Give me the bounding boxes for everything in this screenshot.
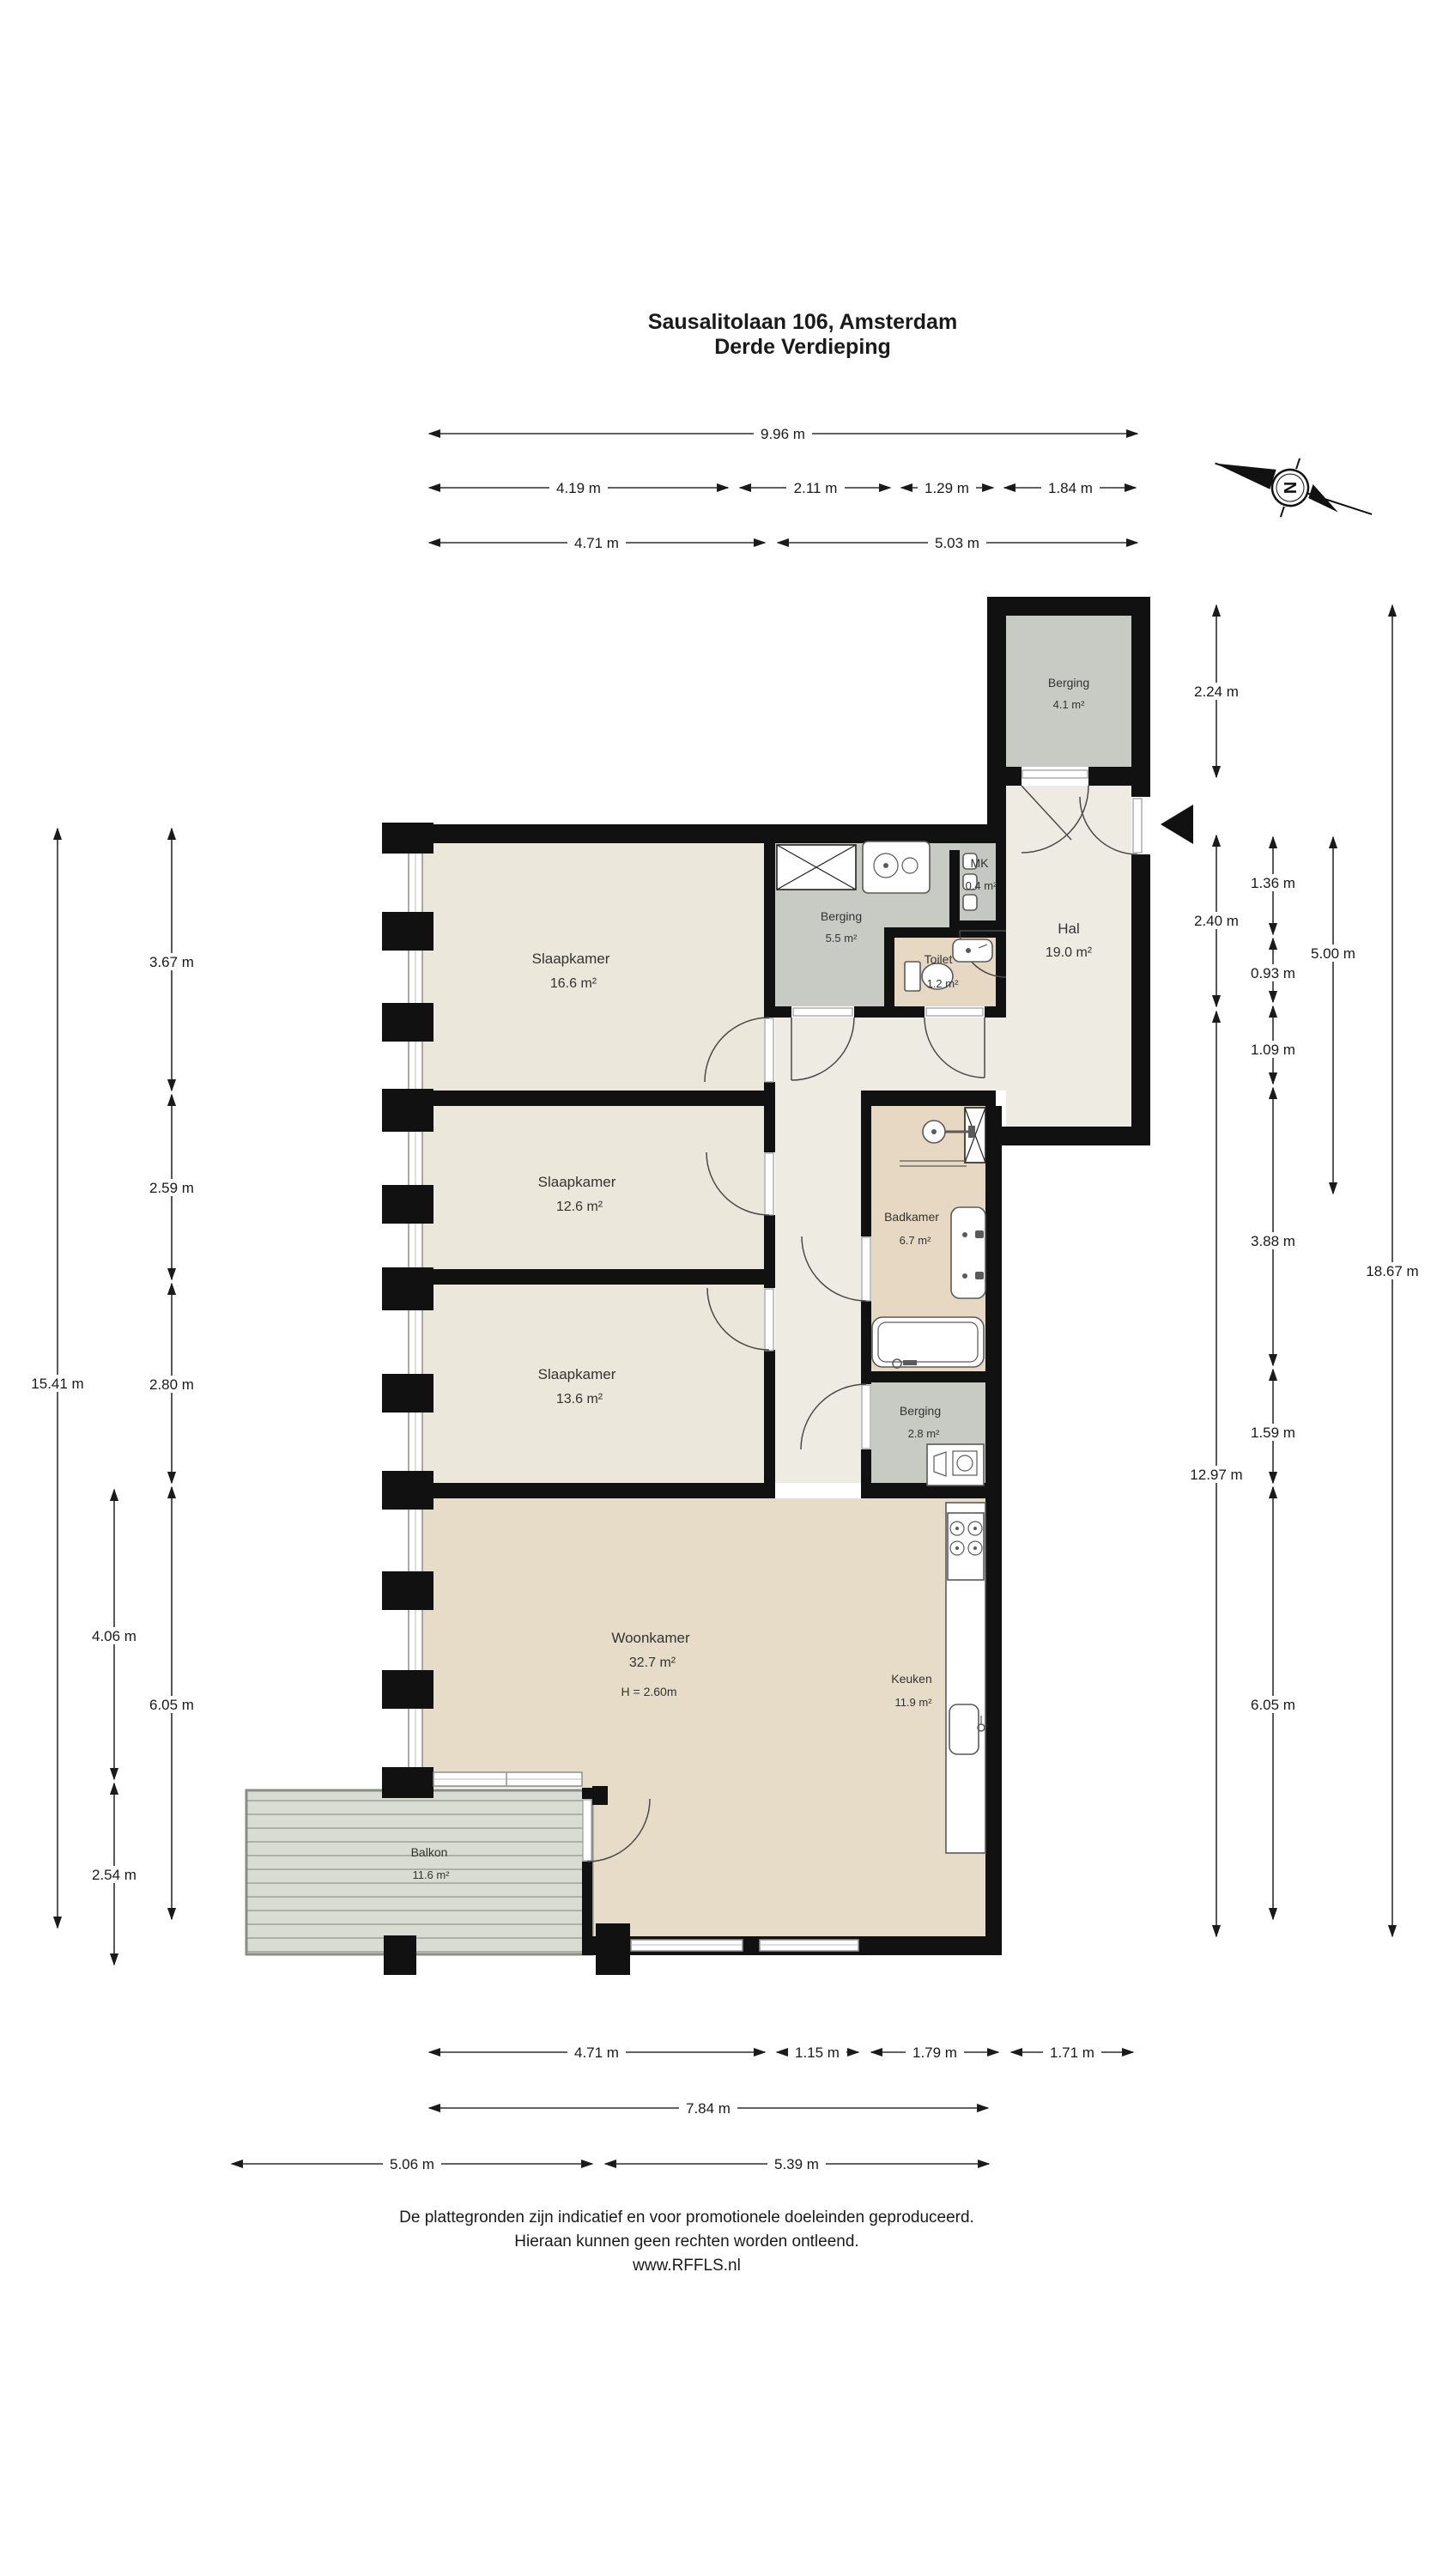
label-woonkamer: Woonkamer [611, 1630, 690, 1646]
dimensions-left: 15.41 m 4.06 m 2.54 m 3.67 m 2.59 m 2.80… [21, 829, 201, 1965]
label-woonkamer-height: H = 2.60m [621, 1685, 677, 1698]
label-slaapkamer-1-area: 16.6 m² [550, 976, 597, 991]
label-berging-mid-area: 5.5 m² [826, 932, 858, 945]
room-slaapkamer-1 [421, 843, 764, 1091]
svg-text:1.09 m: 1.09 m [1251, 1042, 1295, 1058]
label-badkamer-area: 6.7 m² [900, 1234, 932, 1247]
svg-text:2.80 m: 2.80 m [149, 1376, 194, 1393]
dim-total-width: 9.96 m [761, 426, 805, 442]
label-toilet-area: 1.2 m² [927, 977, 960, 990]
label-toilet: Toilet [925, 952, 953, 966]
label-keuken-area: 11.9 m² [894, 1696, 932, 1709]
svg-text:15.41 m: 15.41 m [31, 1376, 83, 1392]
svg-text:5.39 m: 5.39 m [774, 2156, 819, 2172]
svg-text:2.24 m: 2.24 m [1194, 683, 1239, 700]
label-balkon: Balkon [411, 1845, 448, 1859]
svg-text:1.84 m: 1.84 m [1048, 480, 1093, 496]
label-woonkamer-area: 32.7 m² [629, 1656, 676, 1670]
svg-text:3.67 m: 3.67 m [149, 954, 194, 970]
label-slaapkamer-1: Slaapkamer [532, 951, 610, 967]
label-slaapkamer-3: Slaapkamer [538, 1366, 616, 1382]
label-keuken: Keuken [891, 1672, 931, 1686]
svg-text:0.93 m: 0.93 m [1251, 965, 1295, 981]
bathtub-icon [872, 1317, 984, 1368]
svg-text:5.06 m: 5.06 m [390, 2156, 434, 2172]
svg-text:4.19 m: 4.19 m [556, 480, 601, 496]
svg-text:5.00 m: 5.00 m [1311, 945, 1355, 962]
label-berging-top: Berging [1048, 676, 1089, 690]
label-slaapkamer-3-area: 13.6 m² [556, 1392, 603, 1406]
washer-icon [863, 841, 930, 893]
svg-text:3.88 m: 3.88 m [1251, 1233, 1295, 1249]
svg-text:4.71 m: 4.71 m [574, 2044, 619, 2061]
footer-website: www.RFFLS.nl [632, 2257, 741, 2275]
label-hal: Hal [1058, 920, 1080, 937]
label-slaapkamer-2: Slaapkamer [538, 1174, 616, 1190]
shaft-icon [777, 845, 856, 890]
room-berging-top [1006, 616, 1131, 767]
label-mk-area: 0.4 m² [966, 879, 998, 892]
svg-text:2.59 m: 2.59 m [149, 1180, 194, 1196]
svg-text:1.15 m: 1.15 m [795, 2044, 840, 2061]
svg-text:2.54 m: 2.54 m [92, 1867, 136, 1883]
label-hal-area: 19.0 m² [1046, 945, 1093, 960]
washbasin-icon [953, 939, 992, 962]
svg-text:6.05 m: 6.05 m [1251, 1697, 1295, 1713]
double-washbasin-icon [951, 1207, 985, 1298]
label-badkamer: Badkamer [884, 1210, 939, 1224]
entrance-arrow-icon [1161, 805, 1193, 844]
dimensions-top: 9.96 m 4.19 m 2.11 m 1.29 m 1.84 m 4.71 … [429, 425, 1137, 551]
svg-text:18.67 m: 18.67 m [1366, 1263, 1418, 1279]
stove-icon [948, 1513, 984, 1580]
svg-text:6.05 m: 6.05 m [149, 1697, 194, 1713]
svg-text:7.84 m: 7.84 m [686, 2100, 731, 2117]
dryer-icon [927, 1444, 984, 1485]
label-slaapkamer-2-area: 12.6 m² [556, 1200, 603, 1214]
svg-text:1.29 m: 1.29 m [925, 480, 969, 496]
plan-title-address: Sausalitolaan 106, Amsterdam [648, 310, 957, 334]
footer-disclaimer-1: De plattegronden zijn indicatief en voor… [399, 2208, 974, 2227]
label-berging-mid: Berging [821, 909, 862, 923]
plan-title-floor: Derde Verdieping [714, 335, 891, 359]
svg-text:12.97 m: 12.97 m [1190, 1467, 1242, 1483]
label-mk: MK [971, 856, 990, 870]
compass-n-label: N [1280, 482, 1299, 494]
footer-disclaimer-2: Hieraan kunnen geen rechten worden ontle… [514, 2233, 858, 2251]
svg-text:1.79 m: 1.79 m [912, 2044, 957, 2061]
label-berging-small: Berging [900, 1404, 941, 1418]
svg-text:1.59 m: 1.59 m [1251, 1425, 1295, 1441]
svg-text:1.36 m: 1.36 m [1251, 875, 1295, 891]
svg-text:1.71 m: 1.71 m [1050, 2044, 1094, 2061]
svg-text:2.40 m: 2.40 m [1194, 913, 1239, 929]
label-berging-small-area: 2.8 m² [908, 1427, 941, 1440]
label-berging-top-area: 4.1 m² [1053, 698, 1086, 711]
svg-text:5.03 m: 5.03 m [935, 535, 979, 551]
svg-text:4.06 m: 4.06 m [92, 1628, 136, 1644]
svg-text:4.71 m: 4.71 m [574, 535, 619, 551]
svg-text:2.11 m: 2.11 m [794, 480, 838, 496]
dimensions-bottom: 4.71 m 1.15 m 1.79 m 1.71 m 7.84 m 5.06 … [232, 2044, 1133, 2172]
floor-plan-canvas: Sausalitolaan 106, Amsterdam Derde Verdi… [0, 0, 1449, 2576]
compass-north-icon: N [1205, 434, 1381, 544]
dimensions-right: 2.24 m 2.40 m 12.97 m 1.36 m 0.93 m 1.09… [1180, 605, 1428, 1936]
label-balkon-area: 11.6 m² [412, 1868, 450, 1881]
